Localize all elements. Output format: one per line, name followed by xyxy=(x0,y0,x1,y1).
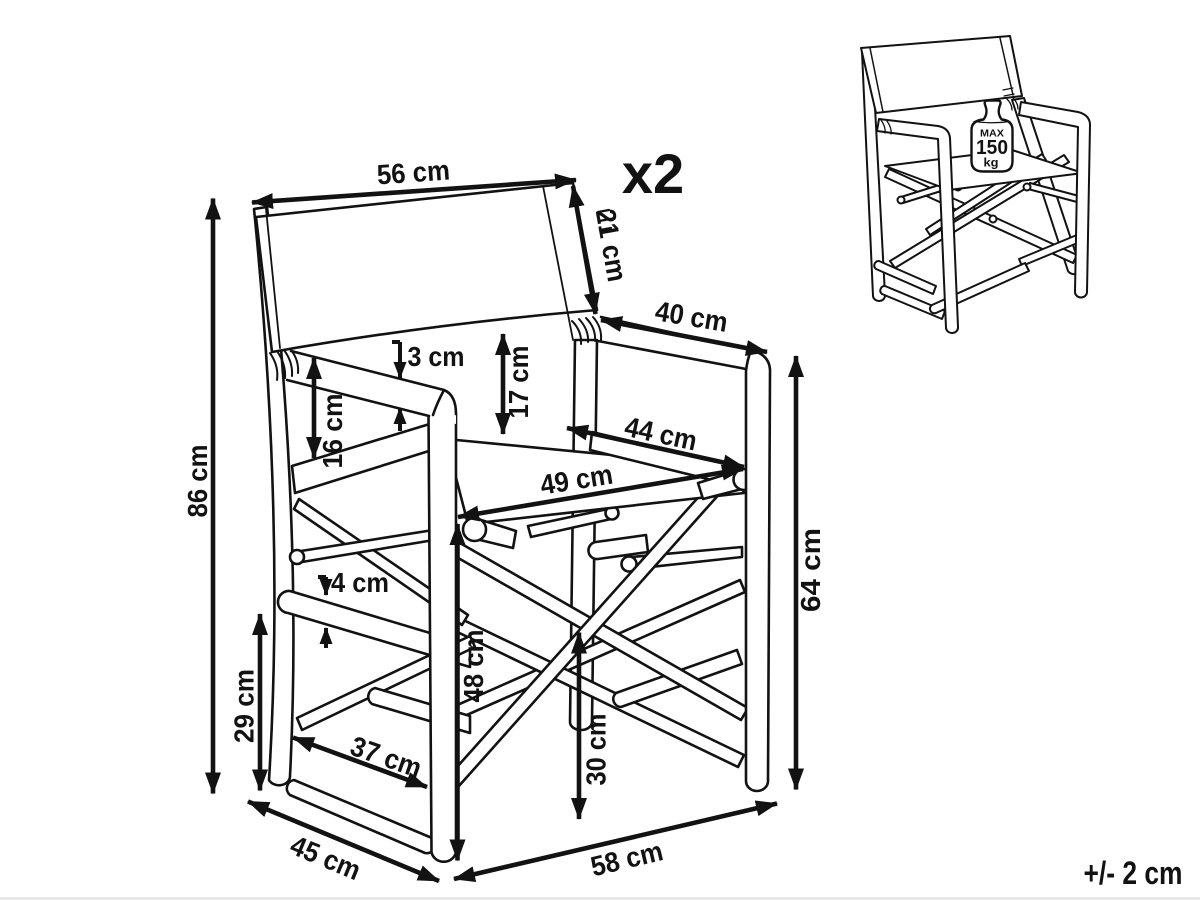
svg-text:3 cm: 3 cm xyxy=(408,341,465,372)
svg-text:kg: kg xyxy=(984,158,999,170)
svg-text:48 cm: 48 cm xyxy=(458,630,489,703)
svg-text:30 cm: 30 cm xyxy=(581,714,612,786)
svg-text:4 cm: 4 cm xyxy=(331,567,389,598)
svg-text:29 cm: 29 cm xyxy=(229,669,260,743)
svg-text:16 cm: 16 cm xyxy=(317,394,348,469)
svg-text:64 cm: 64 cm xyxy=(795,528,826,612)
svg-text:x2: x2 xyxy=(622,142,684,205)
svg-text:17 cm: 17 cm xyxy=(503,346,534,419)
svg-text:56 cm: 56 cm xyxy=(376,155,451,191)
svg-text:+/- 2 cm: +/- 2 cm xyxy=(1084,855,1183,891)
svg-text:150: 150 xyxy=(976,136,1008,159)
svg-text:86 cm: 86 cm xyxy=(182,445,213,518)
